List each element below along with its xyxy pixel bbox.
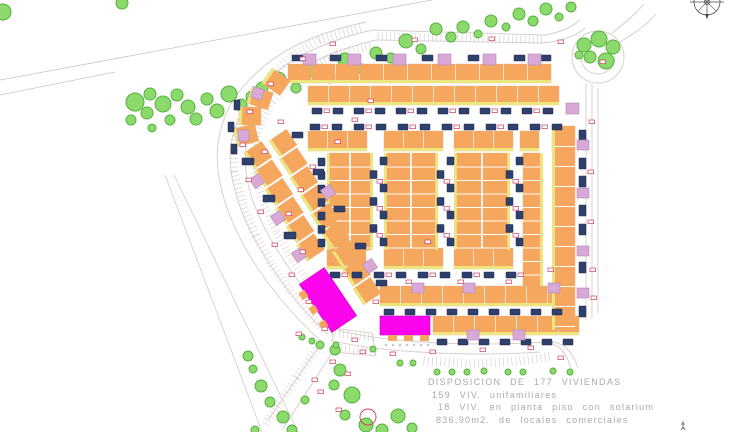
scale-figure — [681, 421, 685, 430]
legend-line-2: 159 VIV. unifamiliares — [432, 389, 654, 402]
legend-block: DISPOSICION DE 177 VIVIENDAS 159 VIV. un… — [428, 376, 654, 426]
site-plan: DISPOSICION DE 177 VIVIENDAS 159 VIV. un… — [0, 0, 756, 432]
commercial-building-2 — [380, 316, 430, 346]
house — [239, 107, 262, 126]
legend-line-3: 18 VIV. en planta piso con solarium — [438, 401, 654, 414]
legend-title: DISPOSICION DE 177 VIVIENDAS — [428, 376, 654, 389]
legend-line-4: 836,90m2. de locales comerciales — [436, 414, 654, 427]
compass-rose-icon — [690, 0, 724, 19]
site-plan-canvas — [0, 0, 756, 432]
housing-layer — [233, 64, 579, 335]
